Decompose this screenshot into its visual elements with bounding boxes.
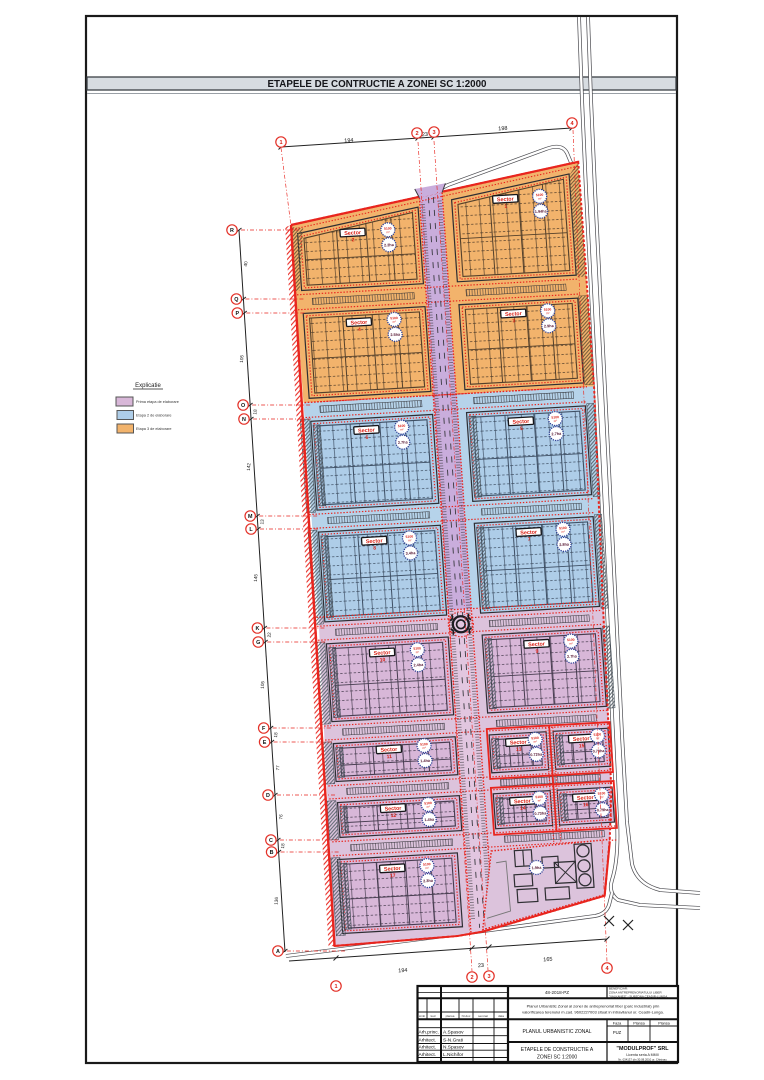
svg-text:M: M [248, 514, 253, 520]
svg-text:R: R [230, 228, 234, 234]
svg-text:Etapa 2 de elaborare: Etapa 2 de elaborare [136, 414, 171, 418]
svg-text:40: 40 [243, 261, 248, 267]
svg-text:Sector: Sector [528, 641, 546, 648]
svg-text:K: K [255, 626, 259, 632]
svg-text:3: 3 [432, 130, 435, 136]
svg-text:1: 1 [279, 140, 282, 146]
svg-text:m²: m² [546, 311, 550, 315]
svg-text:m²: m² [554, 419, 558, 423]
svg-text:Etapa 3 de elaborare: Etapa 3 de elaborare [136, 427, 171, 431]
svg-text:Planul Urbanistic Zonal al zon: Planul Urbanistic Zonal al zonei de antr… [527, 1004, 660, 1009]
svg-text:m²: m² [426, 805, 430, 809]
svg-text:18: 18 [252, 409, 257, 415]
svg-text:kod: kod [431, 1014, 436, 1018]
svg-text:0.73ha: 0.73ha [534, 811, 547, 816]
svg-text:194: 194 [344, 138, 354, 145]
svg-text:B: B [270, 850, 274, 856]
svg-text:Sector: Sector [514, 798, 532, 805]
svg-text:simb: simb [419, 1014, 426, 1018]
svg-text:Sector: Sector [577, 795, 595, 802]
svg-text:data: data [498, 1014, 504, 1018]
svg-text:2.8ha: 2.8ha [559, 543, 570, 548]
svg-text:Arhitect.: Arhitect. [419, 1037, 437, 1043]
svg-text:N: N [242, 417, 246, 423]
svg-text:C: C [269, 838, 273, 844]
svg-text:0.72ha: 0.72ha [530, 752, 543, 757]
svg-text:Sector: Sector [573, 736, 591, 743]
svg-text:1.4ha: 1.4ha [424, 818, 435, 823]
svg-text:Sector: Sector [497, 196, 515, 203]
svg-text:Prima etapa de elaborare: Prima etapa de elaborare [136, 400, 179, 404]
svg-text:m²: m² [416, 650, 420, 654]
svg-text:Arhitect.: Arhitect. [419, 1052, 437, 1058]
svg-text:m²: m² [425, 866, 429, 870]
svg-text:1.94ha: 1.94ha [535, 209, 548, 214]
svg-text:G: G [256, 640, 260, 646]
svg-text:A.Spasov: A.Spasov [443, 1030, 464, 1036]
svg-text:m²: m² [400, 427, 404, 431]
svg-text:Licenta seria A MMII: Licenta seria A MMII [626, 1053, 658, 1057]
svg-text:L.Nichifor: L.Nichifor [443, 1052, 464, 1058]
svg-text:2.9ha: 2.9ha [544, 324, 555, 329]
svg-text:3: 3 [487, 974, 490, 980]
svg-text:48-2018-PZ: 48-2018-PZ [545, 990, 569, 995]
svg-text:Sector: Sector [358, 427, 376, 434]
svg-text:1.4ha: 1.4ha [420, 759, 431, 764]
svg-text:2.5ha: 2.5ha [390, 333, 401, 338]
svg-text:Plansa: Plansa [658, 1022, 670, 1026]
svg-text:2.7ha: 2.7ha [551, 432, 562, 437]
svg-text:3.4ha: 3.4ha [406, 551, 417, 556]
svg-text:23: 23 [478, 963, 485, 969]
svg-text:plansa: plansa [446, 1014, 455, 1018]
svg-text:Faza: Faza [613, 1022, 622, 1026]
svg-text:m²: m² [538, 799, 542, 803]
svg-text:Sector: Sector [350, 320, 368, 327]
svg-text:142: 142 [246, 462, 252, 470]
svg-text:PLANUL URBANISTIC ZONAL: PLANUL URBANISTIC ZONAL [523, 1029, 592, 1035]
svg-text:m²: m² [408, 538, 412, 542]
svg-text:22: 22 [267, 632, 272, 638]
svg-text:Nr. 034137 din 30.08.2010 or.: Nr. 034137 din 30.08.2010 or. Chisinau [618, 1058, 667, 1062]
svg-text:Nr.doc: Nr.doc [462, 1014, 471, 1018]
svg-text:Sector: Sector [505, 311, 523, 318]
svg-text:14: 14 [520, 806, 526, 812]
svg-text:A: A [276, 949, 280, 955]
svg-text:17: 17 [390, 873, 396, 879]
svg-text:2.7ha: 2.7ha [567, 654, 578, 659]
svg-text:76: 76 [278, 814, 283, 820]
svg-text:2: 2 [470, 975, 473, 981]
svg-text:D: D [266, 793, 270, 799]
svg-text:165: 165 [543, 957, 553, 964]
svg-text:ZONEI SC 1:2000: ZONEI SC 1:2000 [537, 1055, 578, 1061]
svg-text:0.73ha: 0.73ha [592, 749, 605, 754]
svg-text:m²: m² [596, 736, 600, 740]
svg-text:10: 10 [380, 657, 386, 663]
svg-text:semnat: semnat [478, 1014, 488, 1018]
svg-text:Sector: Sector [344, 230, 362, 237]
svg-text:ETAPELE DE CONTRUCTIE A ZONEI: ETAPELE DE CONTRUCTIE A ZONEI SC 1:2000 [267, 79, 487, 90]
svg-text:2.2ha: 2.2ha [384, 243, 395, 248]
svg-text:13: 13 [259, 519, 264, 525]
svg-text:15: 15 [579, 743, 585, 749]
svg-text:"VALKANES" - SUBZONA CEADIR-LU: "VALKANES" - SUBZONA CEADIR-LUNGA. [609, 995, 668, 999]
svg-text:m²: m² [392, 320, 396, 324]
svg-text:13: 13 [516, 747, 522, 753]
svg-text:Explicatie: Explicatie [135, 383, 161, 389]
svg-text:"MODULPROF" SRL: "MODULPROF" SRL [616, 1046, 669, 1052]
svg-text:m²: m² [533, 740, 537, 744]
svg-text:Sector: Sector [374, 650, 392, 657]
svg-text:m²: m² [569, 641, 573, 645]
svg-text:11: 11 [387, 754, 393, 760]
svg-text:194: 194 [398, 968, 408, 975]
svg-text:145: 145 [253, 573, 259, 581]
svg-text:Sector: Sector [384, 866, 402, 873]
svg-text:ETAPELE DE CONSTRUCTIE A: ETAPELE DE CONSTRUCTIE A [521, 1047, 594, 1053]
svg-text:Sector: Sector [520, 530, 538, 537]
svg-text:m²: m² [386, 230, 390, 234]
svg-text:1.9ha: 1.9ha [532, 866, 543, 871]
svg-text:77: 77 [275, 765, 280, 771]
svg-text:2: 2 [415, 131, 418, 137]
svg-text:S-N.Grati: S-N.Grati [443, 1037, 463, 1043]
svg-text:m²: m² [422, 746, 426, 750]
svg-text:Arh.princ.: Arh.princ. [419, 1030, 440, 1036]
svg-text:m²: m² [561, 530, 565, 534]
svg-text:1: 1 [334, 984, 337, 990]
svg-text:m²: m² [538, 197, 542, 201]
svg-text:105: 105 [260, 680, 266, 688]
svg-text:12: 12 [391, 813, 397, 819]
svg-text:Q: Q [234, 297, 238, 303]
svg-text:105: 105 [239, 354, 245, 362]
svg-text:Sector: Sector [380, 747, 398, 754]
svg-text:2.4ha: 2.4ha [413, 663, 424, 668]
svg-text:136: 136 [274, 896, 280, 904]
svg-text:Arhitect.: Arhitect. [419, 1044, 437, 1050]
svg-text:O: O [241, 403, 245, 409]
svg-text:valorificarea terenului m.cad.: valorificarea terenului m.cad. 960222700… [522, 1010, 664, 1015]
svg-text:18: 18 [280, 843, 285, 849]
svg-text:18: 18 [273, 732, 278, 738]
svg-text:0.79ha: 0.79ha [597, 808, 610, 813]
svg-text:2.7ha: 2.7ha [398, 440, 409, 445]
svg-text:198: 198 [498, 126, 508, 133]
svg-text:Plansa: Plansa [633, 1022, 645, 1026]
svg-text:Sector: Sector [366, 538, 384, 545]
svg-text:N.Spasov: N.Spasov [443, 1044, 464, 1050]
svg-text:Sector: Sector [510, 740, 528, 747]
svg-text:P: P [235, 311, 239, 317]
svg-text:2.3ha: 2.3ha [423, 879, 434, 884]
svg-text:E: E [263, 740, 267, 746]
svg-text:PUZ: PUZ [613, 1030, 622, 1035]
svg-text:Sector: Sector [512, 419, 530, 426]
svg-text:Sector: Sector [384, 806, 402, 813]
svg-text:16: 16 [583, 802, 589, 808]
